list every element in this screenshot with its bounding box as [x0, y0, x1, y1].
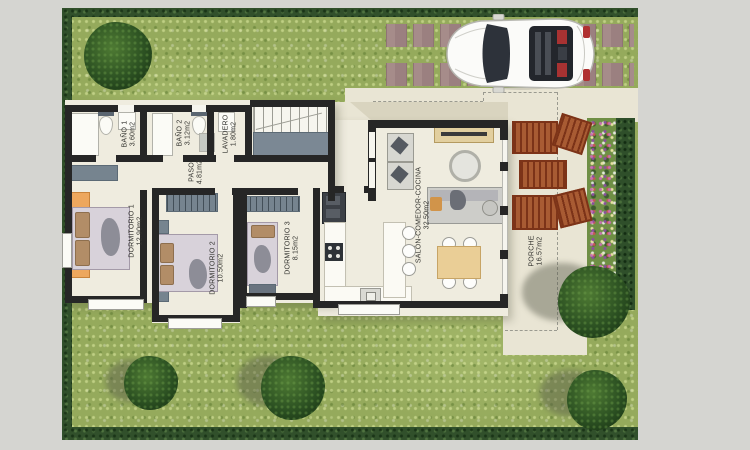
room-label-salon: SALÓN-COMEDOR-COCINA32.50m2	[416, 167, 433, 263]
wall	[368, 120, 508, 128]
bar-stool-icon	[402, 244, 416, 258]
shower-icon	[152, 113, 173, 156]
window-icon	[369, 162, 375, 188]
sun-lounger-icon	[512, 121, 558, 154]
room-label-bano2: BAÑO 23.12m2	[177, 120, 194, 147]
wall	[313, 188, 320, 308]
garden-plot: BAÑO 13.60m2 BAÑO 23.12m2 LAVADERO1.80m2…	[62, 8, 638, 440]
car-icon	[437, 14, 601, 93]
wall	[328, 100, 335, 201]
bar-stool-icon	[402, 226, 416, 240]
wardrobe-icon	[70, 165, 118, 181]
window-icon	[192, 105, 206, 112]
tree-icon	[261, 356, 325, 420]
glass-mullion	[500, 206, 508, 215]
wall	[240, 188, 298, 195]
wall	[250, 155, 335, 162]
window-sill	[168, 318, 222, 329]
armchair-icon	[387, 133, 414, 162]
window-sill	[62, 233, 72, 268]
shower-icon	[70, 113, 99, 156]
room-label-porche: PORCHE16.57m2	[529, 235, 546, 266]
armchair-icon	[387, 162, 414, 190]
window-icon	[118, 105, 134, 112]
wall	[152, 188, 215, 195]
wall	[65, 155, 96, 162]
side-table-icon	[482, 200, 498, 216]
wardrobe-icon	[166, 193, 218, 212]
wall	[500, 294, 508, 308]
wall	[335, 186, 344, 193]
wall	[152, 188, 159, 322]
wall	[240, 188, 247, 308]
sun-lounger-icon	[512, 195, 558, 230]
tree-icon	[84, 22, 152, 90]
wall	[250, 100, 335, 107]
room-label-dormitorio1: DORMITORIO 112.90m2	[129, 204, 146, 258]
tree-icon	[567, 370, 627, 430]
dashed-outline	[483, 92, 484, 101]
wall	[116, 155, 163, 162]
stove-icon	[325, 243, 343, 261]
tv-console-icon	[434, 127, 494, 143]
dining-table-icon	[437, 246, 481, 279]
round-rug-icon	[449, 150, 481, 182]
wall	[65, 105, 72, 303]
window-icon	[369, 132, 375, 158]
glass-mullion	[500, 250, 508, 259]
tree-icon	[558, 266, 630, 338]
tree-icon	[124, 356, 178, 410]
bed-icon	[72, 207, 130, 270]
staircase-icon	[253, 103, 330, 135]
bar-stool-icon	[402, 262, 416, 276]
roof-eave	[350, 102, 508, 121]
wardrobe-icon	[243, 196, 300, 212]
room-label-bano1: BAÑO 13.60m2	[122, 121, 139, 148]
dashed-outline	[373, 101, 483, 102]
room-label-lavadero: LAVADERO1.80m2	[223, 115, 240, 154]
dashed-outline	[505, 330, 557, 331]
room-label-dormitorio2: DORMITORIO 210.50m2	[210, 241, 227, 295]
wall	[65, 105, 252, 112]
window-sill	[246, 296, 276, 307]
glass-mullion	[500, 162, 508, 171]
bed-icon	[247, 222, 278, 286]
window-sill	[338, 304, 400, 315]
wall	[500, 120, 508, 140]
floor-plan-canvas: BAÑO 13.60m2 BAÑO 23.12m2 LAVADERO1.80m2…	[0, 0, 750, 450]
sun-lounger-icon	[519, 160, 567, 189]
room-label-paso: PASO4.81m2	[189, 160, 206, 185]
wall	[245, 107, 252, 162]
wall	[233, 188, 240, 322]
window-sill	[88, 299, 144, 310]
room-label-dormitorio3: DORMITORIO 38.15m2	[285, 221, 302, 275]
hedge-bottom	[62, 427, 638, 440]
